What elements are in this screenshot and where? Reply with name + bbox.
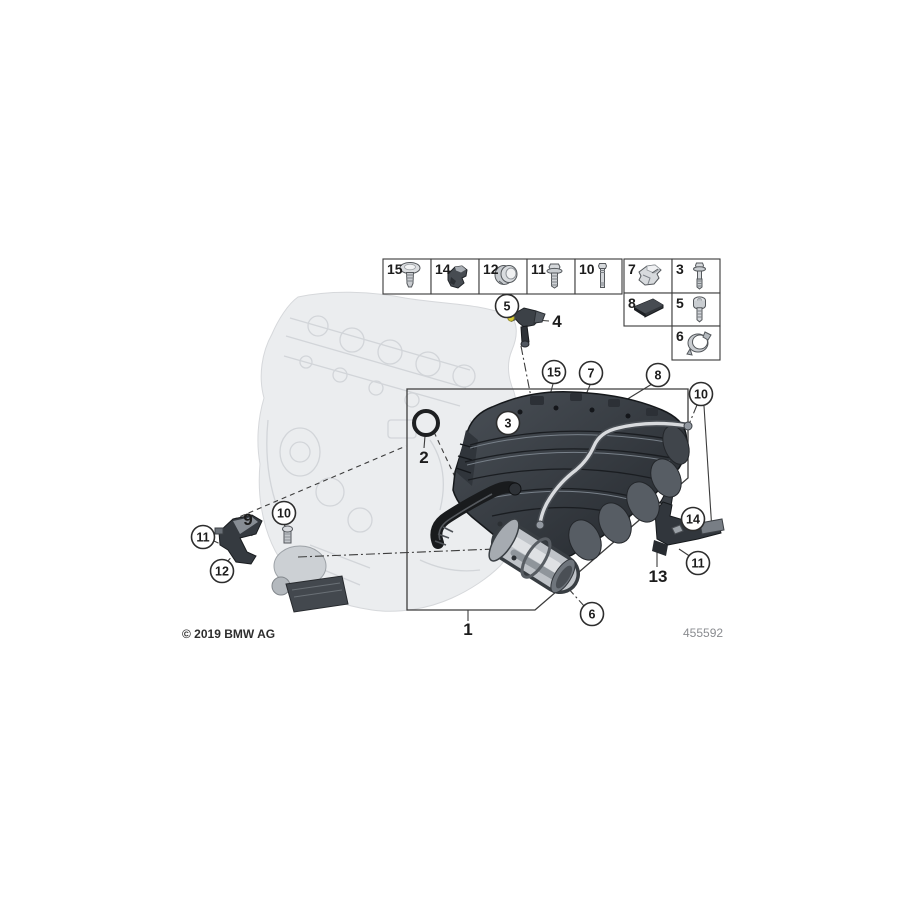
part-number-label: 5 xyxy=(676,295,684,311)
callout-8-3[interactable]: 8 xyxy=(647,364,670,387)
diagram-svg: 151412111073856 5157810310111214116 1249… xyxy=(0,0,900,900)
parts-cell-6[interactable]: 6 xyxy=(672,326,720,360)
part-number-label: 8 xyxy=(628,295,636,311)
callout-7-2[interactable]: 7 xyxy=(580,362,603,385)
callout-10-6[interactable]: 10 xyxy=(273,502,296,525)
part-label-1: 1 xyxy=(463,620,472,639)
callout-number: 8 xyxy=(655,368,662,382)
part-number-label: 11 xyxy=(531,261,546,277)
parts-cell-11[interactable]: 11 xyxy=(527,259,575,294)
parts-diagram-page: 151412111073856 5157810310111214116 1249… xyxy=(0,0,900,900)
parts-cell-14[interactable]: 14 xyxy=(431,259,479,294)
parts-cell-3[interactable]: 3 xyxy=(672,259,720,293)
diagram-number: 455592 xyxy=(683,626,723,640)
callout-number: 7 xyxy=(588,366,595,380)
part-number-label: 6 xyxy=(676,328,684,344)
callout-11-10[interactable]: 11 xyxy=(687,552,710,575)
callout-3-5[interactable]: 3 xyxy=(497,412,520,435)
parts-cell-12[interactable]: 12 xyxy=(479,259,527,294)
part-number-label: 3 xyxy=(676,261,684,277)
callout-10-4[interactable]: 10 xyxy=(690,383,713,406)
callout-number: 15 xyxy=(547,365,561,379)
part-label-2: 2 xyxy=(419,448,428,467)
support-bracket-left xyxy=(215,515,262,564)
parts-cell-5[interactable]: 5 xyxy=(672,293,720,326)
callout-number: 5 xyxy=(504,299,511,313)
callout-number: 11 xyxy=(196,530,209,544)
bracket-bolt-left xyxy=(283,526,293,543)
callout-14-9[interactable]: 14 xyxy=(682,508,705,531)
callout-number: 12 xyxy=(215,564,229,578)
callout-number: 11 xyxy=(691,556,704,570)
callout-number: 6 xyxy=(589,607,596,621)
part-number-label: 7 xyxy=(628,261,636,277)
callout-number: 14 xyxy=(686,512,700,526)
part-label-9: 9 xyxy=(243,510,252,529)
callout-number: 3 xyxy=(505,416,512,430)
part-label-4: 4 xyxy=(552,312,562,331)
callout-number: 10 xyxy=(694,387,708,401)
callout-number: 10 xyxy=(277,506,291,520)
callout-6-11[interactable]: 6 xyxy=(581,603,604,626)
callout-12-8[interactable]: 12 xyxy=(211,560,234,583)
part-number-label: 12 xyxy=(483,261,499,277)
part-number-label: 15 xyxy=(387,261,403,277)
copyright-text: © 2019 BMW AG xyxy=(182,627,275,641)
parts-cell-10[interactable]: 10 xyxy=(575,259,622,294)
callout-15-1[interactable]: 15 xyxy=(543,361,566,384)
parts-cell-7[interactable]: 7 xyxy=(624,259,672,293)
part-number-label: 10 xyxy=(579,261,595,277)
parts-cell-15[interactable]: 15 xyxy=(383,259,431,294)
callout-11-7[interactable]: 11 xyxy=(192,526,215,549)
parts-cell-8[interactable]: 8 xyxy=(624,293,672,326)
part-label-13: 13 xyxy=(649,567,668,586)
callout-5-0[interactable]: 5 xyxy=(496,295,519,318)
part-number-label: 14 xyxy=(435,261,451,277)
